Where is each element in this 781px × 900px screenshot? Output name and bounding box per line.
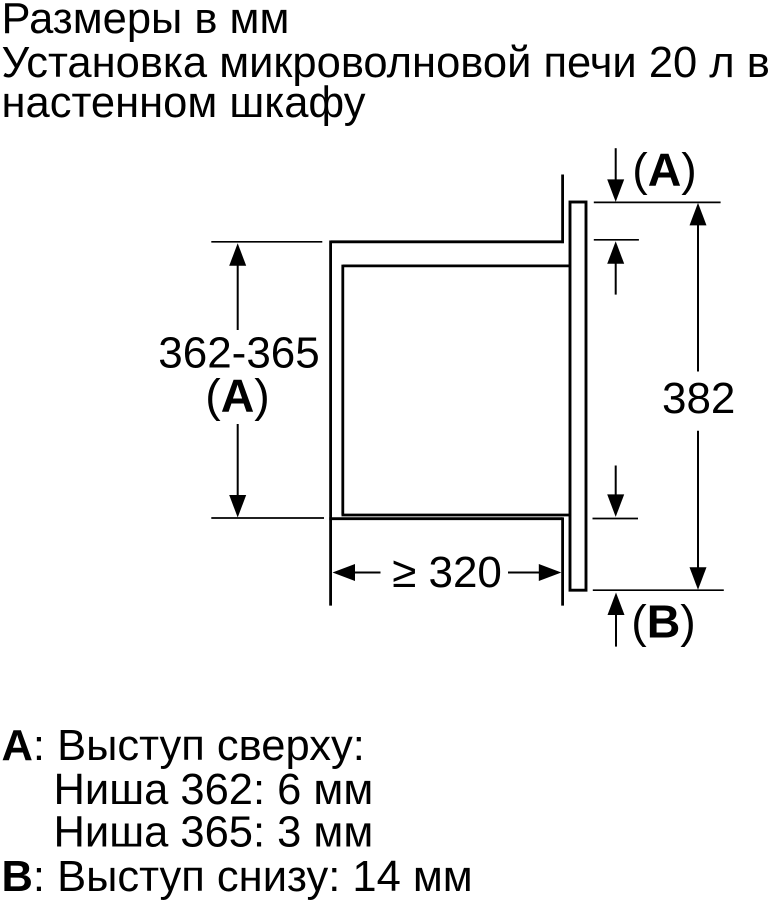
svg-text:(A): (A) [205, 370, 270, 422]
svg-text:Ниша 362: 6 мм: Ниша 362: 6 мм [54, 766, 374, 814]
svg-text:≥ 320: ≥ 320 [392, 548, 502, 597]
svg-text:настенном шкафу: настенном шкафу [2, 79, 366, 127]
svg-text:(B): (B) [631, 596, 696, 648]
svg-text:(A): (A) [632, 144, 697, 196]
svg-text:382: 382 [662, 374, 735, 423]
svg-text:Размеры в мм: Размеры в мм [2, 0, 290, 43]
svg-text:Ниша 365: 3 мм: Ниша 365: 3 мм [54, 809, 374, 857]
svg-text:B: Выступ снизу: 14 мм: B: Выступ снизу: 14 мм [2, 853, 473, 900]
svg-text:A: Выступ сверху:: A: Выступ сверху: [2, 722, 365, 770]
